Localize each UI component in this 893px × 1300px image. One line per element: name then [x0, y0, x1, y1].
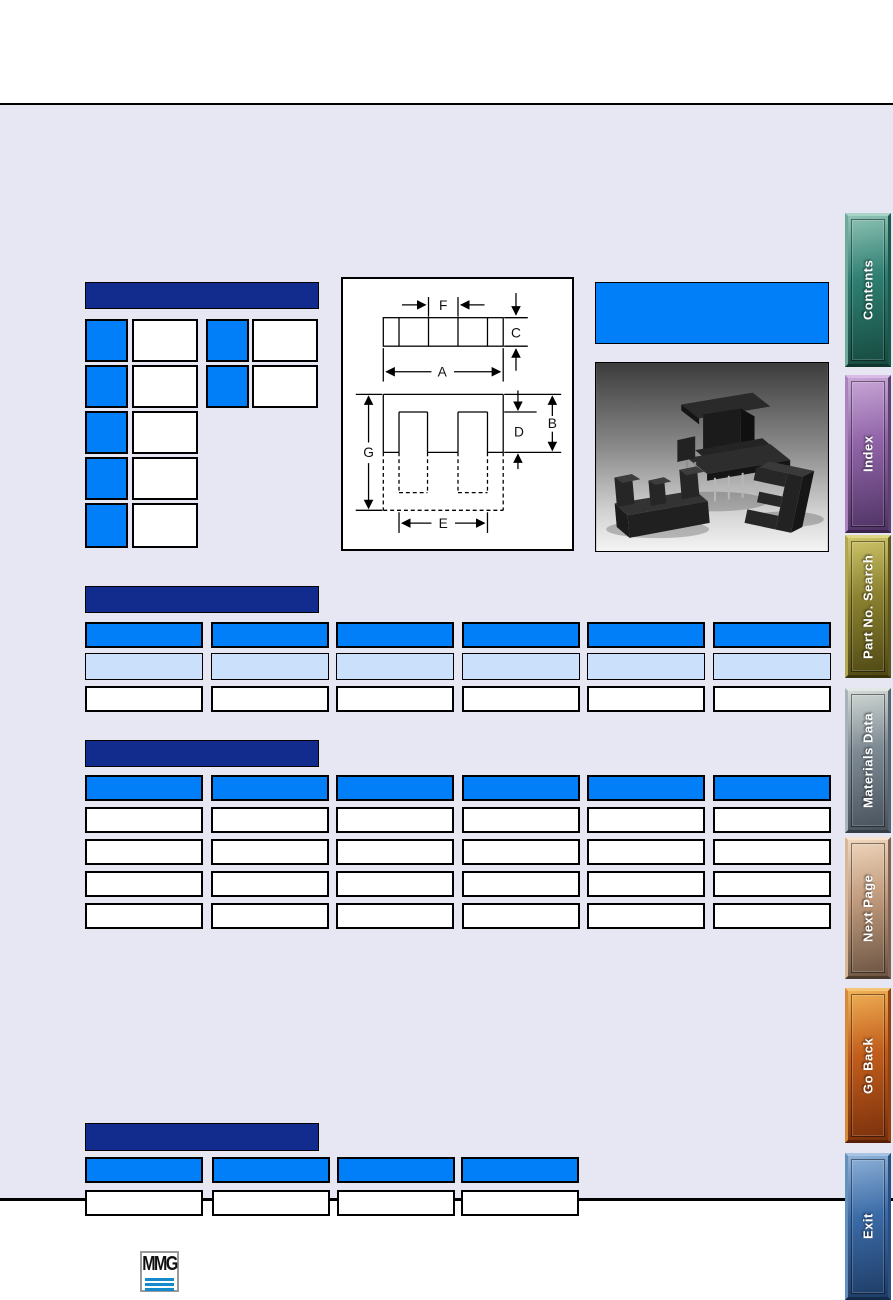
table-cell [336, 653, 454, 680]
table-cell [461, 1190, 579, 1216]
sidebar-button-go-back[interactable]: Go Back [845, 988, 891, 1143]
dim-label-c: C [511, 325, 521, 340]
sidebar-button-exit[interactable]: Exit [845, 1153, 891, 1300]
table-header-cell [461, 1157, 579, 1183]
table-cell [85, 1190, 203, 1216]
table-header-cell [462, 775, 580, 801]
table-cell [587, 807, 705, 833]
table-header-cell [462, 622, 580, 648]
table-header-cell [713, 622, 831, 648]
table-header-cell [85, 457, 128, 500]
mmg-logo-text: MMG [142, 1255, 177, 1275]
table-header-cell [85, 319, 128, 362]
table-cell [336, 686, 454, 712]
table-header-cell [85, 411, 128, 454]
table-cell [713, 839, 831, 865]
table-cell [587, 686, 705, 712]
table-header-cell [337, 1157, 455, 1183]
table-cell [462, 807, 580, 833]
table-header-cell [587, 622, 705, 648]
table-cell [462, 903, 580, 929]
table-header-cell [587, 775, 705, 801]
table-cell [462, 653, 580, 680]
bottom-table-title-bar [85, 1123, 319, 1151]
table-cell [85, 653, 203, 680]
table-cell [462, 686, 580, 712]
mmg-logo: MMG [140, 1251, 179, 1292]
dim-label-d: D [514, 425, 524, 440]
table-cell [713, 903, 831, 929]
table-cell [85, 839, 203, 865]
table-cell [587, 903, 705, 929]
table-cell [336, 871, 454, 897]
sidebar-button-label: Materials Data [848, 691, 888, 830]
sidebar-button-label: Go Back [848, 991, 888, 1140]
table-cell [337, 1190, 455, 1216]
sidebar-button-index[interactable]: Index [845, 375, 891, 533]
table-cell [587, 871, 705, 897]
table-cell [85, 871, 203, 897]
table-cell [211, 903, 329, 929]
sidebar-button-label: Next Page [848, 840, 888, 976]
dimension-diagram: F C A B D G E [341, 277, 574, 551]
table-header-cell [85, 622, 203, 648]
table-cell [132, 365, 198, 408]
top-table-title-bar [85, 586, 319, 613]
sidebar-button-label: Contents [848, 216, 888, 364]
product-title-box [595, 282, 829, 344]
dim-label-e: E [439, 516, 448, 531]
table-cell [85, 807, 203, 833]
table-cell [132, 457, 198, 500]
table-cell [713, 653, 831, 680]
sidebar-button-label: Index [848, 378, 888, 530]
table-cell [211, 871, 329, 897]
table-header-cell [336, 622, 454, 648]
product-photo [595, 362, 829, 552]
table-cell [211, 839, 329, 865]
table-header-cell [85, 365, 128, 408]
table-cell [336, 807, 454, 833]
table-header-cell [85, 775, 203, 801]
table-cell [462, 871, 580, 897]
page-content: F C A B D G E [0, 105, 893, 1198]
sidebar-button-part-no-search[interactable]: Part No. Search [845, 535, 891, 678]
sidebar-button-materials-data[interactable]: Materials Data [845, 688, 891, 833]
table-cell [462, 839, 580, 865]
mmg-logo-stripes [145, 1278, 174, 1293]
sidebar-button-label: Part No. Search [848, 538, 888, 675]
table-cell [252, 365, 318, 408]
dim-label-f: F [439, 298, 447, 313]
table-cell [713, 871, 831, 897]
table-cell [211, 686, 329, 712]
table-cell [713, 807, 831, 833]
table-cell [211, 653, 329, 680]
table-header-cell [336, 775, 454, 801]
table-header-cell [713, 775, 831, 801]
table-header-cell [211, 775, 329, 801]
sidebar-button-label: Exit [848, 1156, 888, 1297]
table-cell [85, 903, 203, 929]
table-cell [212, 1190, 330, 1216]
table-cell [252, 319, 318, 362]
table-header-cell [212, 1157, 330, 1183]
parameter-table-title-bar [85, 282, 319, 309]
table-cell [713, 686, 831, 712]
dim-label-b: B [548, 416, 557, 431]
table-cell [132, 503, 198, 548]
middle-table-title-bar [85, 740, 319, 767]
table-cell [587, 653, 705, 680]
dim-label-a: A [438, 365, 448, 380]
dim-label-g: G [363, 445, 374, 460]
table-header-cell [206, 365, 249, 408]
table-cell [587, 839, 705, 865]
table-cell [336, 839, 454, 865]
table-cell [132, 319, 198, 362]
table-header-cell [206, 319, 249, 362]
table-cell [85, 686, 203, 712]
table-header-cell [85, 1157, 203, 1183]
sidebar-button-contents[interactable]: Contents [845, 213, 891, 367]
table-cell [336, 903, 454, 929]
table-cell [132, 411, 198, 454]
table-header-cell [211, 622, 329, 648]
table-cell [211, 807, 329, 833]
sidebar-button-next-page[interactable]: Next Page [845, 837, 891, 979]
table-header-cell [85, 503, 128, 548]
